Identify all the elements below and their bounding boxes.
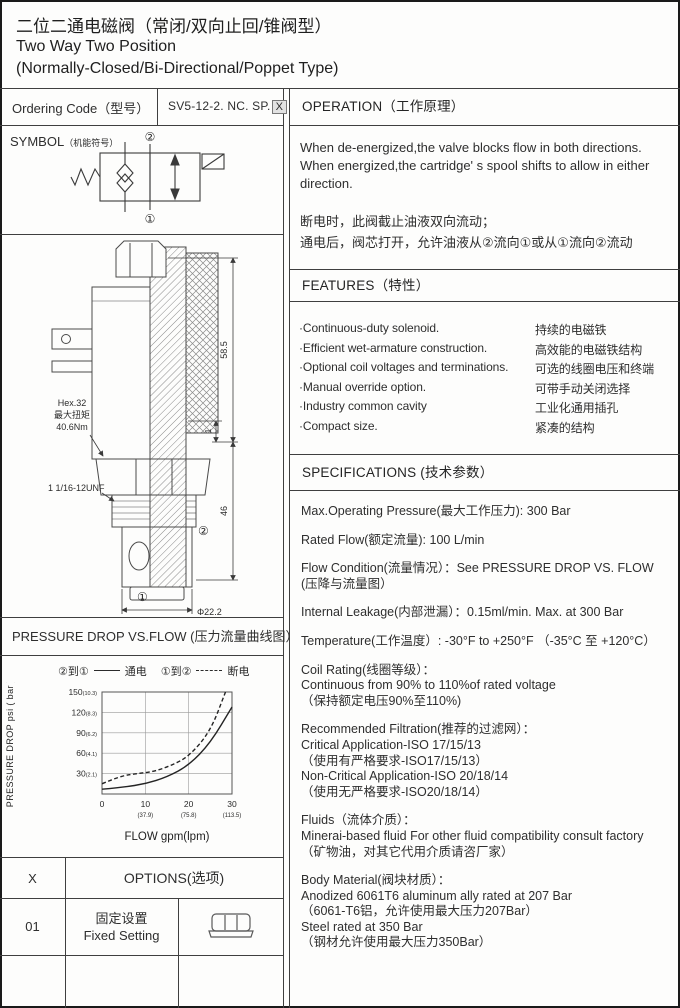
cross-port-hole	[129, 542, 149, 570]
feature-cn: 可带手动关闭选择	[535, 380, 630, 397]
valve-cross-section-drawing: 58.5 46 1 Φ22.2 Hex.32 最大扭矩 40.6Nm 1 1/1…	[0, 235, 283, 618]
pressure-drop-header-section: PRESSURE DROP VS.FLOW (压力流量曲线图）	[0, 618, 283, 656]
features-header-section: FEATURES（特性）	[289, 270, 680, 302]
operation-en-line: When de-energized,the valve blocks flow …	[300, 139, 649, 157]
features-header: FEATURES（特性）	[302, 270, 429, 301]
specifications-header: SPECIFICATIONS (技术参数）	[302, 455, 493, 490]
options-header: OPTIONS(选项)	[65, 858, 283, 898]
spec-paragraph: Coil Rating(线圈等级）：Continuous from 90% to…	[301, 663, 676, 710]
legend-item: ①到②断电	[161, 666, 250, 678]
option-desc-cn: 固定设置	[95, 910, 147, 927]
ordering-code-value: SV5-12-2. NC. SP.X	[168, 99, 287, 114]
specifications-body: Max.Operating Pressure(最大工作压力): 300 BarR…	[301, 504, 676, 964]
symbol-port-1-label: ①	[145, 212, 156, 226]
dim-1-label: 1	[204, 428, 213, 433]
hex-note-2: 最大扭矩	[54, 409, 90, 420]
arrow-up	[171, 155, 179, 165]
valve-stem	[150, 247, 186, 587]
feature-item: ·Manual override option.可带手动关闭选择	[299, 380, 676, 400]
ordering-code-prefix: SV5-12-2. NC. SP.	[168, 99, 271, 113]
dim-diameter-label: Φ22.2	[197, 607, 222, 617]
arrow-down	[171, 189, 179, 199]
page-title-cn: 二位二通电磁阀（常闭/双向止回/锥阀型）	[16, 12, 331, 37]
hex-note-3: 40.6Nm	[56, 422, 88, 432]
svg-text:FLOW gpm(lpm): FLOW gpm(lpm)	[125, 831, 210, 843]
feature-cn: 高效能的电磁铁结构	[535, 341, 642, 358]
features-list: ·Continuous-duty solenoid.持续的电磁铁·Efficie…	[299, 321, 676, 438]
page-title-en1: Two Way Two Position	[16, 38, 176, 56]
ordering-code-section: Ordering Code（型号） SV5-12-2. NC. SP.X	[0, 88, 283, 126]
feature-cn: 紧凑的结构	[535, 419, 595, 436]
page-title-en2: (Normally-Closed/Bi-Directional/Poppet T…	[16, 60, 339, 78]
ordering-code-label: Ordering Code（型号）	[12, 98, 149, 117]
spec-paragraph: Body Material(阀块材质）：Anodized 6061T6 alum…	[301, 873, 676, 951]
feature-en: ·Optional coil voltages and terminations…	[299, 360, 508, 374]
spec-paragraph: Rated Flow(额定流量): 100 L/min	[301, 533, 676, 549]
spade-terminal-1	[52, 329, 92, 349]
operation-cn-line: 断电时，此阀截止油液双向流动；	[300, 211, 633, 232]
pressure-drop-header: PRESSURE DROP VS.FLOW (压力流量曲线图）	[12, 618, 299, 655]
svg-text:PRESSURE DROP psi ( bar ): PRESSURE DROP psi ( bar )	[5, 682, 15, 807]
feature-item: ·Efficient wet-armature construction.高效能…	[299, 341, 676, 361]
operation-text-cn: 断电时，此阀截止油液双向流动； 通电后，阀芯打开，允许油液从②流向①或从①流向②…	[300, 211, 633, 253]
svg-text:60(4.1): 60(4.1)	[76, 748, 97, 758]
feature-cn: 持续的电磁铁	[535, 321, 606, 338]
drawing-port-2-label: ②	[198, 524, 209, 538]
datasheet-page: 二位二通电磁阀（常闭/双向止回/锥阀型） Two Way Two Positio…	[0, 0, 680, 1008]
spec-paragraph: Temperature(工作温度）: -30°F to +250°F （-35°…	[301, 634, 676, 650]
pressure-flow-chart-section: ②到①通电①到②断电 30(2.1)60(4.1)90(6.2)120(8.3)…	[0, 656, 283, 858]
ordering-code-divider	[157, 88, 158, 126]
svg-text:20: 20	[184, 799, 194, 809]
svg-text:(75.8): (75.8)	[181, 813, 197, 819]
spec-paragraph: Flow Condition(流量情况）：See PRESSURE DROP V…	[301, 561, 676, 592]
option-desc-en: Fixed Setting	[84, 927, 160, 944]
thread-section-right	[186, 495, 196, 527]
symbol-section: SYMBOL（机能符号） ② ①	[0, 126, 283, 235]
cross-section-drawing-section: 58.5 46 1 Φ22.2 Hex.32 最大扭矩 40.6Nm 1 1/1…	[0, 235, 283, 618]
features-body-section: ·Continuous-duty solenoid.持续的电磁铁·Efficie…	[289, 302, 680, 455]
feature-cn: 工业化通用插孔	[535, 399, 618, 416]
top-plug	[116, 241, 166, 277]
hydraulic-symbol-diagram: ② ①	[0, 126, 283, 235]
svg-text:30(2.1): 30(2.1)	[76, 769, 97, 779]
spec-paragraph: Recommended Filtration(推荐的过滤网）：Critical …	[301, 722, 676, 800]
operation-en-line: When energized,the cartridge' s spool sh…	[300, 157, 649, 175]
svg-text:30: 30	[227, 799, 237, 809]
dim-46-label: 46	[219, 506, 229, 516]
specifications-body-section: Max.Operating Pressure(最大工作压力): 300 BarR…	[289, 491, 680, 1008]
feature-item: ·Optional coil voltages and terminations…	[299, 360, 676, 380]
operation-header-section: OPERATION（工作原理）	[289, 88, 680, 126]
pressure-flow-plot: 30(2.1)60(4.1)90(6.2)120(8.3)150(10.3)01…	[0, 682, 283, 848]
svg-text:(113.5): (113.5)	[223, 813, 242, 819]
options-table: X OPTIONS(选项) 01 固定设置 Fixed Setting	[0, 858, 283, 1008]
chart-legend: ②到①通电①到②断电	[58, 663, 263, 679]
coil-body	[92, 287, 150, 459]
option-row-icon-cell	[178, 898, 283, 955]
spring-symbol	[71, 169, 100, 185]
options-row-divider-2	[0, 955, 283, 956]
legend-line-swatch	[196, 670, 222, 672]
svg-text:150(10.3): 150(10.3)	[68, 687, 97, 697]
poppet-housing	[186, 253, 218, 433]
legend-item: ②到①通电	[58, 666, 147, 678]
svg-text:90(6.2): 90(6.2)	[76, 728, 97, 738]
option-row-desc: 固定设置 Fixed Setting	[65, 898, 178, 955]
operation-en-line: direction.	[300, 175, 649, 193]
options-col1-header: X	[0, 858, 65, 898]
operation-text-en: When de-energized,the valve blocks flow …	[300, 139, 649, 193]
symbol-port-2-label: ②	[145, 130, 156, 144]
column-divider-1	[283, 88, 284, 1008]
feature-en: ·Efficient wet-armature construction.	[299, 341, 487, 355]
thread-section-left	[112, 495, 150, 527]
operation-cn-line: 通电后，阀芯打开，允许油液从②流向①或从①流向②流动	[300, 232, 633, 253]
spec-paragraph: Internal Leakage(内部泄漏）：0.15ml/min. Max. …	[301, 605, 676, 621]
operation-header: OPERATION（工作原理）	[302, 88, 465, 125]
feature-en: ·Manual override option.	[299, 380, 426, 394]
option-row-code: 01	[0, 898, 65, 955]
feature-en: ·Compact size.	[299, 419, 378, 433]
legend-line-swatch	[94, 670, 120, 672]
spec-paragraph: Fluids（流体介质）：Minerai-based fluid For oth…	[301, 813, 676, 860]
feature-en: ·Continuous-duty solenoid.	[299, 321, 439, 335]
thread-note-label: 1 1/16-12UNF	[48, 483, 105, 493]
feature-item: ·Compact size.紧凑的结构	[299, 419, 676, 439]
svg-text:0: 0	[100, 799, 105, 809]
ordering-code-variable: X	[272, 100, 288, 114]
operation-body-section: When de-energized,the valve blocks flow …	[289, 126, 680, 270]
hex-note-1: Hex.32	[58, 398, 87, 408]
svg-text:120(8.3): 120(8.3)	[72, 707, 98, 717]
feature-en: ·Industry common cavity	[299, 399, 427, 413]
svg-text:10: 10	[141, 799, 151, 809]
spec-paragraph: Max.Operating Pressure(最大工作压力): 300 Bar	[301, 504, 676, 520]
svg-text:(37.9): (37.9)	[137, 813, 153, 819]
feature-item: ·Industry common cavity工业化通用插孔	[299, 399, 676, 419]
drawing-port-1-label: ①	[137, 590, 148, 604]
fixed-setting-nut-icon	[205, 911, 257, 943]
spade-terminal-2	[52, 361, 92, 372]
specifications-header-section: SPECIFICATIONS (技术参数）	[289, 455, 680, 491]
feature-item: ·Continuous-duty solenoid.持续的电磁铁	[299, 321, 676, 341]
dim-58-5-label: 58.5	[219, 341, 229, 359]
feature-cn: 可选的线圈电压和终端	[535, 360, 654, 377]
